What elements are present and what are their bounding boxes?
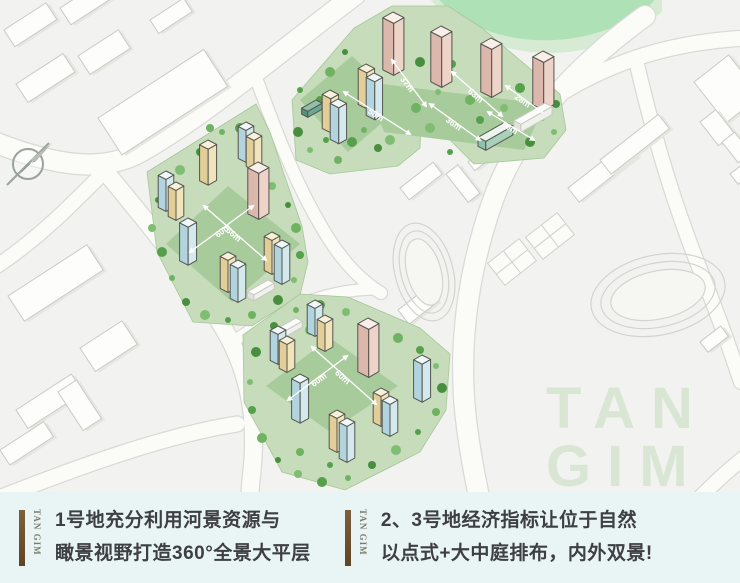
tree	[257, 433, 267, 443]
tree	[247, 379, 253, 385]
building-tower-blu	[339, 418, 355, 462]
building-tower-yel	[200, 140, 217, 185]
tree	[391, 445, 401, 455]
brand-vertical-text: TAN GIM	[32, 509, 42, 567]
caption-line: 瞰景视野打造360°全景大平层	[55, 538, 311, 571]
building-tower-yel	[279, 336, 295, 372]
tree	[361, 127, 367, 133]
tree	[293, 307, 299, 313]
context-building	[60, 0, 122, 27]
tree	[385, 135, 395, 145]
tree	[342, 308, 350, 316]
context-building	[16, 52, 79, 105]
building-tower-pink	[358, 318, 379, 377]
tree	[334, 156, 342, 164]
caption-plot2-3: TAN GIM 2、3号地经济指标让位于自然 以点式+大中庭排布，内外双景!	[345, 505, 653, 570]
tree	[297, 87, 303, 93]
tree	[169, 275, 175, 281]
tree	[291, 223, 301, 233]
tree	[296, 448, 304, 456]
tree	[425, 123, 435, 133]
tree	[416, 346, 424, 354]
caption-line: 以点式+大中庭排布，内外双景!	[381, 538, 653, 571]
tree	[285, 202, 291, 208]
site-plan-page: 37m58m63m36m28m50m60m66m60m60m TAN GIM T…	[0, 0, 740, 583]
tree	[323, 137, 329, 143]
tree	[275, 457, 281, 463]
tree	[294, 470, 302, 478]
building-tower-yel	[317, 315, 333, 351]
tree	[411, 103, 421, 113]
caption-line: 1号地充分利用河景资源与	[55, 505, 311, 538]
context-building	[4, 1, 61, 49]
context-building	[80, 319, 141, 374]
tree	[248, 406, 256, 414]
tree	[433, 363, 439, 369]
building-tower-yel	[168, 182, 184, 220]
tree	[225, 317, 231, 323]
brand-bar	[345, 510, 351, 566]
context-building	[400, 161, 446, 203]
tree	[415, 429, 421, 435]
tree	[368, 461, 376, 469]
tree	[148, 224, 156, 232]
tree	[500, 104, 508, 112]
sports-court	[488, 239, 537, 286]
tree	[273, 295, 283, 305]
sports-court	[526, 213, 575, 260]
tree	[437, 383, 447, 393]
tree	[447, 149, 453, 155]
tree	[393, 333, 403, 343]
caption-text: 2、3号地经济指标让位于自然 以点式+大中庭排布，内外双景!	[381, 505, 653, 570]
running-track-oval	[383, 216, 465, 328]
tree	[206, 124, 214, 132]
brand-watermark: TAN GIM	[546, 380, 740, 496]
tree	[200, 310, 210, 320]
watermark-line-1: TAN	[546, 380, 740, 438]
building-tower-pink	[248, 162, 269, 219]
tree	[327, 462, 333, 468]
tree	[317, 477, 327, 487]
brand-bar	[19, 510, 25, 566]
building-tower-blu	[382, 396, 398, 436]
tree	[219, 129, 225, 135]
tree	[325, 67, 335, 77]
tree	[415, 57, 425, 67]
tree	[345, 475, 351, 481]
brand-vertical-text: TAN GIM	[358, 509, 368, 567]
context-building	[150, 0, 196, 36]
tree	[182, 298, 190, 306]
building-tower-pink	[481, 38, 502, 97]
building-tower-pink	[383, 12, 404, 75]
tree	[248, 311, 256, 319]
caption-plot1: TAN GIM 1号地充分利用河景资源与 瞰景视野打造360°全景大平层	[19, 505, 311, 570]
caption-text: 1号地充分利用河景资源与 瞰景视野打造360°全景大平层	[55, 505, 311, 570]
building-tower-pink	[431, 26, 452, 87]
tree	[291, 277, 297, 283]
tree	[175, 165, 185, 175]
building-tower-blu	[180, 218, 197, 265]
building-tower-blu	[292, 374, 309, 423]
building-tower-pink	[533, 51, 554, 110]
tree	[435, 89, 441, 95]
building-tower-blu	[330, 99, 346, 144]
building-tower-blu	[230, 260, 246, 302]
tree	[157, 247, 167, 257]
tree	[342, 49, 348, 55]
tree	[296, 251, 304, 259]
caption-band: TAN GIM 1号地充分利用河景资源与 瞰景视野打造360°全景大平层 TAN…	[0, 492, 740, 583]
building-tower-blu	[274, 240, 290, 284]
building-tower-blu	[414, 355, 431, 402]
sports-courts	[488, 213, 575, 286]
tree	[347, 137, 357, 147]
tree	[525, 137, 535, 147]
tree	[476, 116, 484, 124]
watermark-line-2: GIM	[546, 438, 740, 496]
tree	[293, 127, 303, 137]
site-plan-map: 37m58m63m36m28m50m60m66m60m60m TAN GIM	[0, 0, 740, 492]
tree	[251, 347, 261, 357]
context-building	[78, 28, 134, 76]
tree	[551, 129, 557, 135]
tree	[432, 408, 440, 416]
caption-line: 2、3号地经济指标让位于自然	[381, 505, 653, 538]
tree	[307, 147, 313, 153]
tree	[374, 144, 382, 152]
